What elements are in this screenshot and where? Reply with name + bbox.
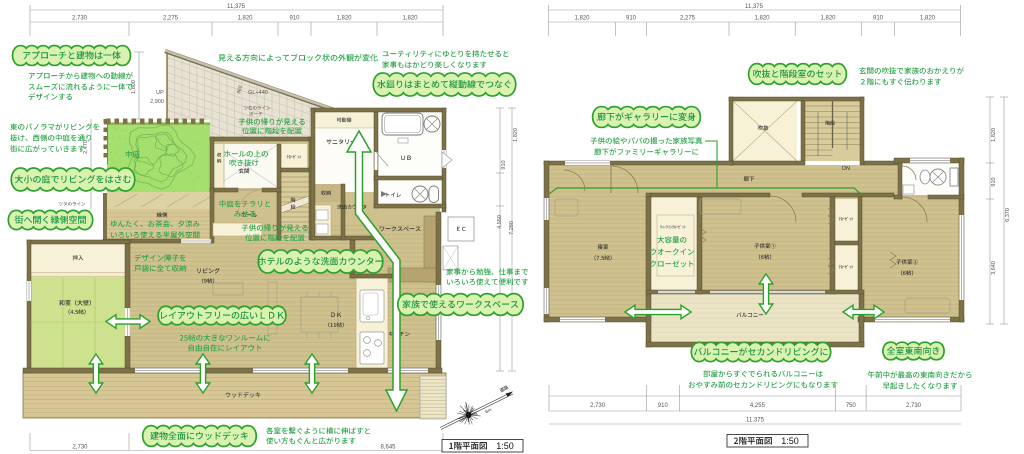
svg-text:1,820: 1,820 — [237, 16, 253, 22]
svg-text:1,820: 1,820 — [574, 16, 590, 22]
svg-text:DN: DN — [842, 166, 850, 172]
svg-text:1,820: 1,820 — [991, 128, 997, 142]
svg-text:8,645: 8,645 — [380, 445, 396, 451]
svg-text:1:50: 1:50 — [496, 441, 514, 451]
svg-text:910: 910 — [626, 16, 637, 22]
svg-text:2,275: 2,275 — [163, 16, 179, 22]
svg-text:11,375: 11,375 — [745, 4, 764, 10]
svg-text:1,820: 1,820 — [920, 16, 936, 22]
svg-text:3,640: 3,640 — [991, 261, 997, 275]
svg-text:1,820: 1,820 — [402, 16, 418, 22]
svg-text:GL+440: GL+440 — [248, 90, 268, 96]
svg-text:2,730: 2,730 — [72, 16, 88, 22]
svg-text:750: 750 — [846, 403, 857, 409]
svg-text:910: 910 — [289, 16, 300, 22]
svg-text:2,730: 2,730 — [906, 403, 922, 409]
svg-text:7,280: 7,280 — [509, 221, 515, 235]
svg-text:2,730: 2,730 — [72, 445, 88, 451]
svg-text:1,820: 1,820 — [754, 16, 770, 22]
svg-text:1:50: 1:50 — [781, 436, 799, 446]
svg-text:910: 910 — [658, 403, 669, 409]
svg-text:6,370: 6,370 — [1005, 208, 1011, 222]
svg-text:11,375: 11,375 — [746, 418, 765, 424]
svg-text:2,900: 2,900 — [150, 99, 164, 105]
svg-text:UP: UP — [156, 90, 164, 96]
svg-text:2,275: 2,275 — [680, 16, 696, 22]
svg-text:2,730: 2,730 — [590, 403, 606, 409]
svg-text:11,375: 11,375 — [227, 4, 246, 10]
svg-text:1,800: 1,800 — [131, 80, 137, 94]
svg-text:1,820: 1,820 — [820, 16, 836, 22]
svg-text:4,255: 4,255 — [750, 403, 766, 409]
svg-text:4,550: 4,550 — [497, 215, 503, 229]
svg-text:910: 910 — [873, 16, 884, 22]
svg-text:1,820: 1,820 — [336, 16, 352, 22]
svg-text:6m: 6m — [484, 407, 492, 414]
svg-text:910: 910 — [991, 177, 997, 186]
svg-text:910: 910 — [501, 160, 507, 169]
svg-text:1,820: 1,820 — [513, 128, 519, 142]
